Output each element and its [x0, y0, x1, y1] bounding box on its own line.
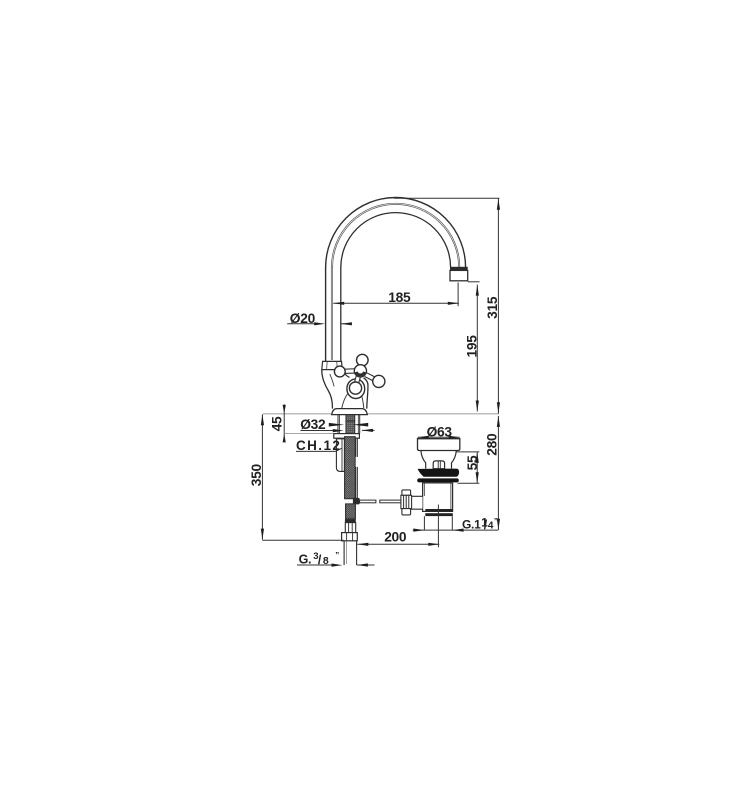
- svg-text:45: 45: [270, 416, 285, 431]
- svg-text:200: 200: [384, 530, 407, 545]
- svg-text:/: /: [318, 553, 322, 567]
- svg-text:”: ”: [335, 551, 339, 560]
- svg-text:G.: G.: [299, 553, 312, 567]
- svg-text:55: 55: [465, 455, 480, 470]
- svg-text:315: 315: [485, 296, 500, 319]
- svg-text:8: 8: [323, 555, 329, 567]
- svg-text:G.1: G.1: [462, 518, 481, 532]
- svg-text:185: 185: [388, 290, 411, 305]
- svg-text:280: 280: [484, 433, 499, 456]
- svg-text:”: ”: [494, 517, 498, 526]
- svg-text:195: 195: [464, 335, 479, 358]
- svg-text:350: 350: [249, 463, 264, 486]
- svg-text:CH.12: CH.12: [296, 438, 341, 453]
- svg-text:Ø32: Ø32: [300, 417, 326, 432]
